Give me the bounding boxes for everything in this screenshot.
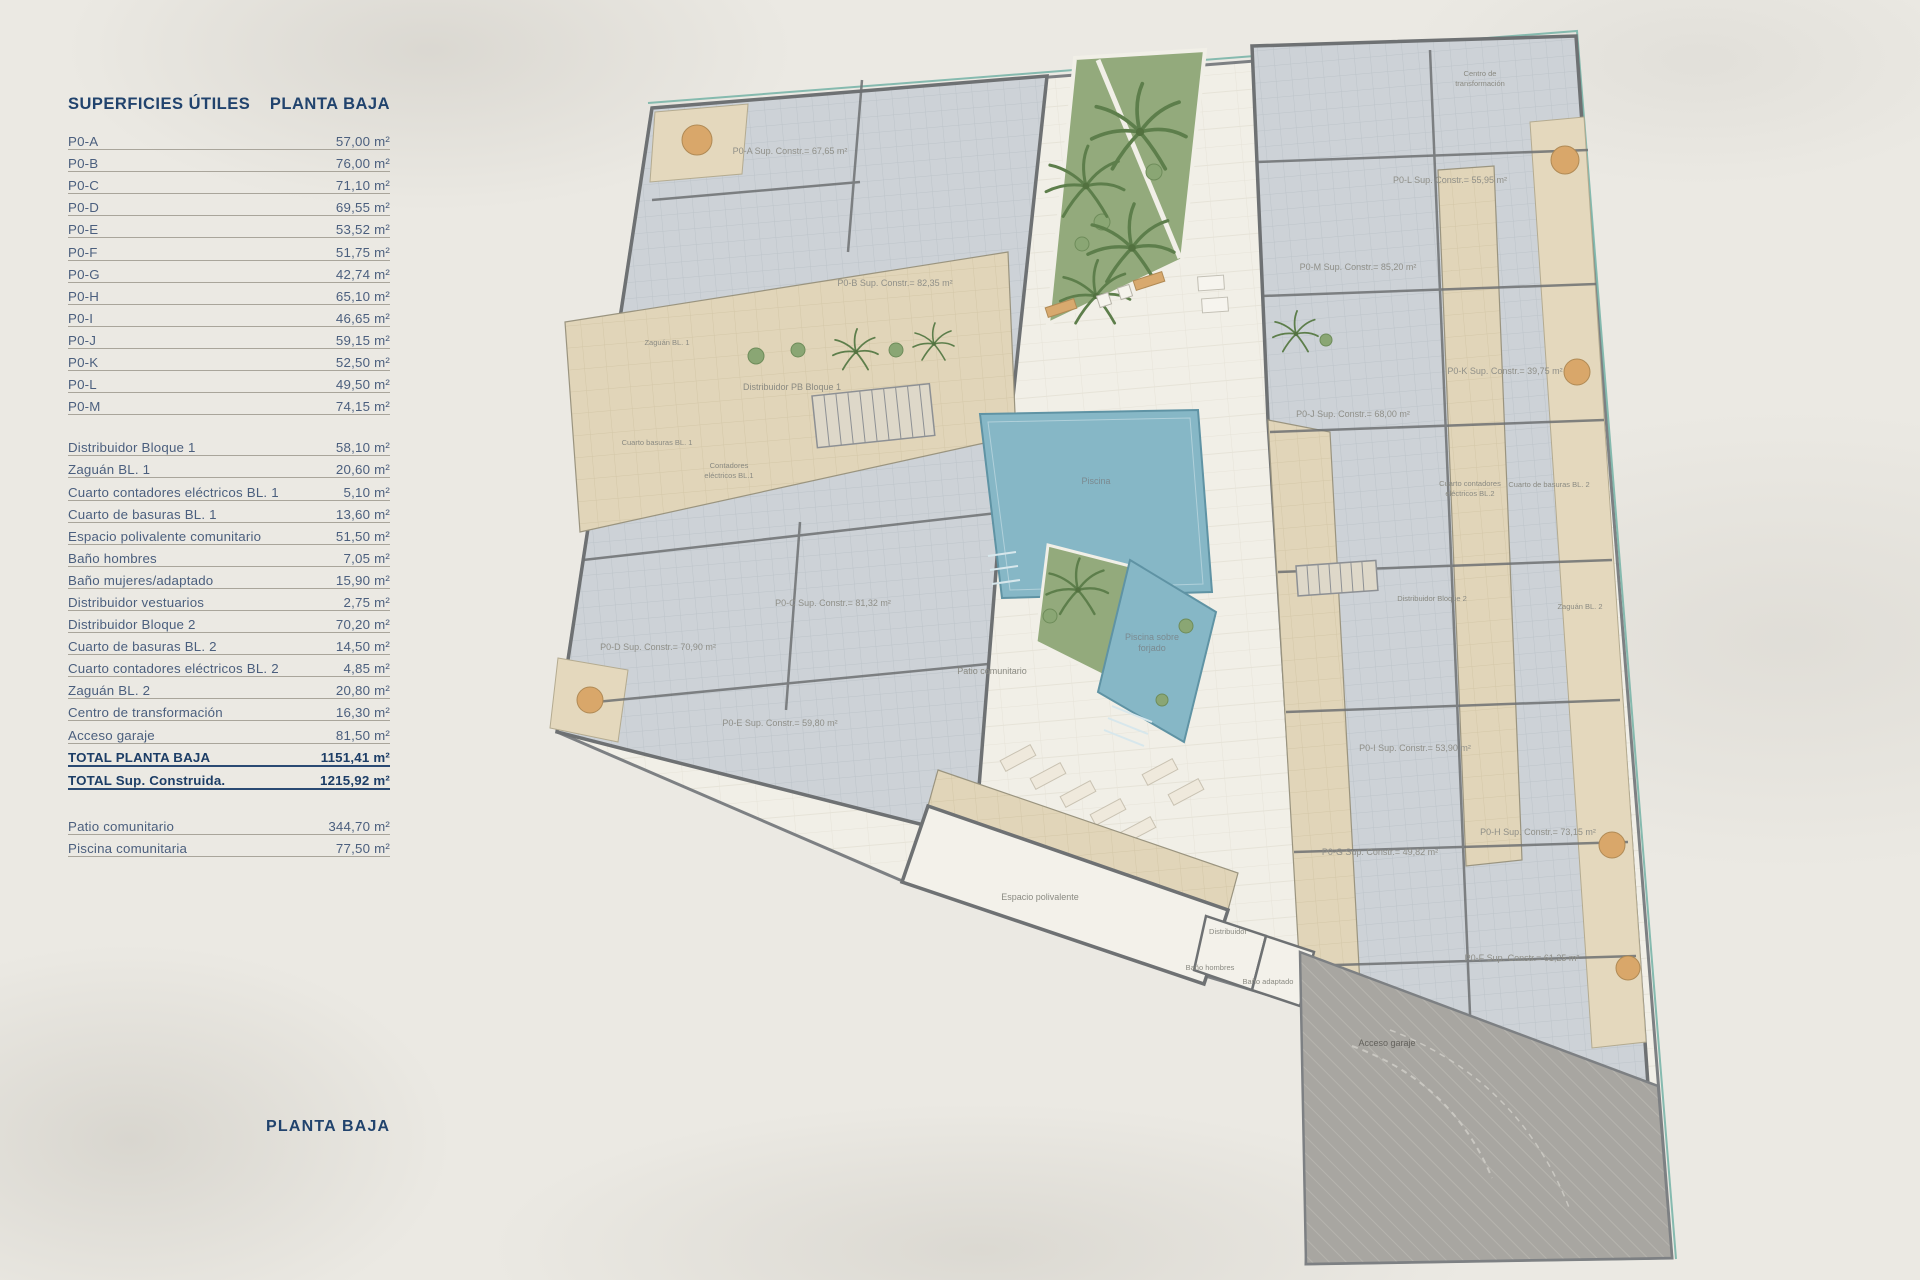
room-label-piscina-forjado: Piscina sobre xyxy=(1125,632,1179,642)
row-value: 16,30 m² xyxy=(336,705,390,720)
row-value: 51,50 m² xyxy=(336,529,390,544)
round-table xyxy=(577,687,603,713)
table-row: Espacio polivalente comunitario51,50 m² xyxy=(68,523,390,545)
row-value: 7,05 m² xyxy=(344,551,390,566)
table-row: Centro de transformación16,30 m² xyxy=(68,699,390,721)
row-value: 69,55 m² xyxy=(336,200,390,215)
table-row: P0-D69,55 m² xyxy=(68,194,390,216)
row-value: 2,75 m² xyxy=(344,595,390,610)
round-table xyxy=(682,125,712,155)
plan-name: PLANTA BAJA xyxy=(270,95,390,114)
row-label: P0-M xyxy=(68,399,101,414)
row-value: 1215,92 m² xyxy=(320,773,390,788)
room-label-distribuidor1: Distribuidor PB Bloque 1 xyxy=(743,382,841,392)
row-label: P0-G xyxy=(68,267,100,282)
bush-icon xyxy=(1146,164,1162,180)
total-row: TOTAL PLANTA BAJA1151,41 m² xyxy=(68,744,390,767)
row-value: 59,15 m² xyxy=(336,333,390,348)
row-value: 49,50 m² xyxy=(336,377,390,392)
row-value: 77,50 m² xyxy=(336,841,390,856)
row-label: Piscina comunitaria xyxy=(68,841,187,856)
unit-label-p0i: P0-I Sup. Constr.= 53,90 m² xyxy=(1359,743,1471,753)
bush-icon xyxy=(1320,334,1332,346)
table-row: P0-A57,00 m² xyxy=(68,128,390,150)
unit-label-p0d: P0-D Sup. Constr.= 70,90 m² xyxy=(600,642,716,652)
row-label: P0-H xyxy=(68,289,99,304)
row-label: Acceso garaje xyxy=(68,728,155,743)
unit-areas-list: P0-A57,00 m² P0-B76,00 m² P0-C71,10 m² P… xyxy=(68,128,390,415)
unit-label-p0e: P0-E Sup. Constr.= 59,80 m² xyxy=(722,718,837,728)
table-row: Acceso garaje81,50 m² xyxy=(68,721,390,743)
bush-icon xyxy=(1075,237,1089,251)
row-label: P0-L xyxy=(68,377,97,392)
row-value: 58,10 m² xyxy=(336,440,390,455)
table-row: Cuarto de basuras BL. 214,50 m² xyxy=(68,633,390,655)
room-label-acceso-garaje: Acceso garaje xyxy=(1358,1038,1415,1048)
row-label: Cuarto contadores eléctricos BL. 2 xyxy=(68,661,279,676)
table-header: SUPERFICIES ÚTILES PLANTA BAJA xyxy=(68,95,390,114)
room-label-piscina: Piscina xyxy=(1081,476,1110,486)
row-label: P0-J xyxy=(68,333,96,348)
row-value: 1151,41 m² xyxy=(321,750,390,765)
bush-icon xyxy=(889,343,903,357)
row-value: 74,15 m² xyxy=(336,399,390,414)
row-label: Distribuidor Bloque 2 xyxy=(68,617,196,632)
round-table xyxy=(1564,359,1590,385)
table-row: P0-H65,10 m² xyxy=(68,283,390,305)
unit-label-p0m: P0-M Sup. Constr.= 85,20 m² xyxy=(1300,262,1417,272)
unit-label-p0h: P0-H Sup. Constr.= 73,15 m² xyxy=(1480,827,1596,837)
row-label: P0-I xyxy=(68,311,93,326)
table-row: Cuarto de basuras BL. 113,60 m² xyxy=(68,501,390,523)
row-value: 15,90 m² xyxy=(336,573,390,588)
row-label: Distribuidor Bloque 1 xyxy=(68,440,196,455)
row-value: 65,10 m² xyxy=(336,289,390,304)
row-label: TOTAL PLANTA BAJA xyxy=(68,750,210,765)
areas-table-panel: SUPERFICIES ÚTILES PLANTA BAJA P0-A57,00… xyxy=(68,95,390,857)
table-row: Zaguán BL. 220,80 m² xyxy=(68,677,390,699)
row-label: P0-K xyxy=(68,355,98,370)
common-areas-list: Distribuidor Bloque 158,10 m² Zaguán BL.… xyxy=(68,434,390,743)
row-value: 53,52 m² xyxy=(336,222,390,237)
row-value: 14,50 m² xyxy=(336,639,390,654)
sheet-title: PLANTA BAJA xyxy=(266,1118,390,1136)
row-label: Cuarto de basuras BL. 1 xyxy=(68,507,217,522)
row-label: TOTAL Sup. Construida. xyxy=(68,773,225,788)
row-label: P0-B xyxy=(68,156,98,171)
table-row: Baño hombres7,05 m² xyxy=(68,545,390,567)
unit-label-p0g: P0-G Sup. Constr.= 49,82 m² xyxy=(1322,847,1438,857)
table-row: Cuarto contadores eléctricos BL. 24,85 m… xyxy=(68,655,390,677)
bench xyxy=(1202,297,1229,313)
row-value: 81,50 m² xyxy=(336,728,390,743)
row-value: 57,00 m² xyxy=(336,134,390,149)
room-label-centro-transformacion: Centro de xyxy=(1464,69,1497,78)
room-label-distribuidor: Distribuidor xyxy=(1209,927,1247,936)
row-label: Baño hombres xyxy=(68,551,157,566)
room-label-bano-adaptado: Baño adaptado xyxy=(1243,977,1294,986)
page-title: SUPERFICIES ÚTILES xyxy=(68,95,250,114)
room-label-distribuidor2: Distribuidor Bloque 2 xyxy=(1397,594,1467,603)
row-label: Baño mujeres/adaptado xyxy=(68,573,213,588)
row-value: 52,50 m² xyxy=(336,355,390,370)
round-table xyxy=(1551,146,1579,174)
row-value: 20,60 m² xyxy=(336,462,390,477)
unit-label-p0l: P0-L Sup. Constr.= 55,95 m² xyxy=(1393,175,1507,185)
unit-label-p0f: P0-F Sup. Constr.= 61,25 m² xyxy=(1465,953,1580,963)
unit-label-p0j: P0-J Sup. Constr.= 68,00 m² xyxy=(1296,409,1410,419)
row-label: Distribuidor vestuarios xyxy=(68,595,204,610)
table-row: Baño mujeres/adaptado15,90 m² xyxy=(68,567,390,589)
round-table xyxy=(1599,832,1625,858)
room-label-contadores2: Cuarto contadores xyxy=(1439,479,1501,488)
row-value: 51,75 m² xyxy=(336,245,390,260)
row-label: P0-F xyxy=(68,245,98,260)
room-label-espacio: Espacio polivalente xyxy=(1001,892,1079,902)
row-value: 71,10 m² xyxy=(336,178,390,193)
row-value: 70,20 m² xyxy=(336,617,390,632)
row-value: 46,65 m² xyxy=(336,311,390,326)
row-label: P0-C xyxy=(68,178,99,193)
table-row: P0-J59,15 m² xyxy=(68,327,390,349)
bush-icon xyxy=(791,343,805,357)
unit-label-p0b: P0-B Sup. Constr.= 82,35 m² xyxy=(837,278,952,288)
row-label: Cuarto de basuras BL. 2 xyxy=(68,639,217,654)
table-row: Zaguán BL. 120,60 m² xyxy=(68,456,390,478)
table-row: P0-K52,50 m² xyxy=(68,349,390,371)
unit-label-p0k: P0-K Sup. Constr.= 39,75 m² xyxy=(1447,366,1562,376)
extra-areas-list: Patio comunitario344,70 m² Piscina comun… xyxy=(68,813,390,857)
room-label-bano-hombres: Baño hombres xyxy=(1186,963,1235,972)
row-label: P0-E xyxy=(68,222,98,237)
totals-list: TOTAL PLANTA BAJA1151,41 m² TOTAL Sup. C… xyxy=(68,744,390,790)
row-value: 20,80 m² xyxy=(336,683,390,698)
room-label-contadores1b: eléctricos BL.1 xyxy=(704,471,753,480)
table-row: P0-M74,15 m² xyxy=(68,393,390,415)
room-label-zaguan1: Zaguán BL. 1 xyxy=(644,338,689,347)
table-row: Distribuidor Bloque 270,20 m² xyxy=(68,611,390,633)
staircase-block2 xyxy=(1296,560,1378,596)
room-label-basuras2: Cuarto de basuras BL. 2 xyxy=(1508,480,1589,489)
room-label-zaguan2: Zaguán BL. 2 xyxy=(1557,602,1602,611)
table-row: Piscina comunitaria77,50 m² xyxy=(68,835,390,857)
row-value: 13,60 m² xyxy=(336,507,390,522)
room-label-centro-transformacion2: transformación xyxy=(1455,79,1505,88)
unit-label-p0a: P0-A Sup. Constr.= 67,65 m² xyxy=(733,146,848,156)
row-label: Patio comunitario xyxy=(68,819,174,834)
row-value: 4,85 m² xyxy=(344,661,390,676)
row-value: 76,00 m² xyxy=(336,156,390,171)
total-row: TOTAL Sup. Construida.1215,92 m² xyxy=(68,767,390,790)
table-row: P0-E53,52 m² xyxy=(68,216,390,238)
row-label: Cuarto contadores eléctricos BL. 1 xyxy=(68,485,279,500)
round-table xyxy=(1616,956,1640,980)
room-label-basuras1: Cuarto basuras BL. 1 xyxy=(622,438,693,447)
table-row: P0-B76,00 m² xyxy=(68,150,390,172)
bush-icon xyxy=(1179,619,1193,633)
bench xyxy=(1198,275,1225,291)
table-row: P0-L49,50 m² xyxy=(68,371,390,393)
table-row: Cuarto contadores eléctricos BL. 15,10 m… xyxy=(68,478,390,500)
row-label: Centro de transformación xyxy=(68,705,223,720)
room-label-contadores1: Contadores xyxy=(710,461,749,470)
row-label: Zaguán BL. 1 xyxy=(68,462,150,477)
table-row: P0-F51,75 m² xyxy=(68,238,390,260)
room-label-patio: Patio comunitario xyxy=(957,666,1027,676)
room-label-piscina-forjado2: forjado xyxy=(1138,643,1166,653)
row-label: Espacio polivalente comunitario xyxy=(68,529,261,544)
bush-icon xyxy=(1043,609,1057,623)
bush-icon xyxy=(1156,694,1168,706)
table-row: Distribuidor vestuarios2,75 m² xyxy=(68,589,390,611)
table-row: P0-G42,74 m² xyxy=(68,261,390,283)
row-value: 42,74 m² xyxy=(336,267,390,282)
table-row: P0-C71,10 m² xyxy=(68,172,390,194)
table-row: P0-I46,65 m² xyxy=(68,305,390,327)
row-label: P0-D xyxy=(68,200,99,215)
table-row: Patio comunitario344,70 m² xyxy=(68,813,390,835)
plan-sheet: P0-A Sup. Constr.= 67,65 m² P0-B Sup. Co… xyxy=(0,0,1920,1280)
bush-icon xyxy=(748,348,764,364)
row-value: 344,70 m² xyxy=(328,819,390,834)
row-value: 5,10 m² xyxy=(344,485,390,500)
row-label: P0-A xyxy=(68,134,98,149)
row-label: Zaguán BL. 2 xyxy=(68,683,150,698)
room-label-contadores2b: eléctricos BL.2 xyxy=(1445,489,1494,498)
unit-label-p0c: P0-C Sup. Constr.= 81,32 m² xyxy=(775,598,891,608)
table-row: Distribuidor Bloque 158,10 m² xyxy=(68,434,390,456)
